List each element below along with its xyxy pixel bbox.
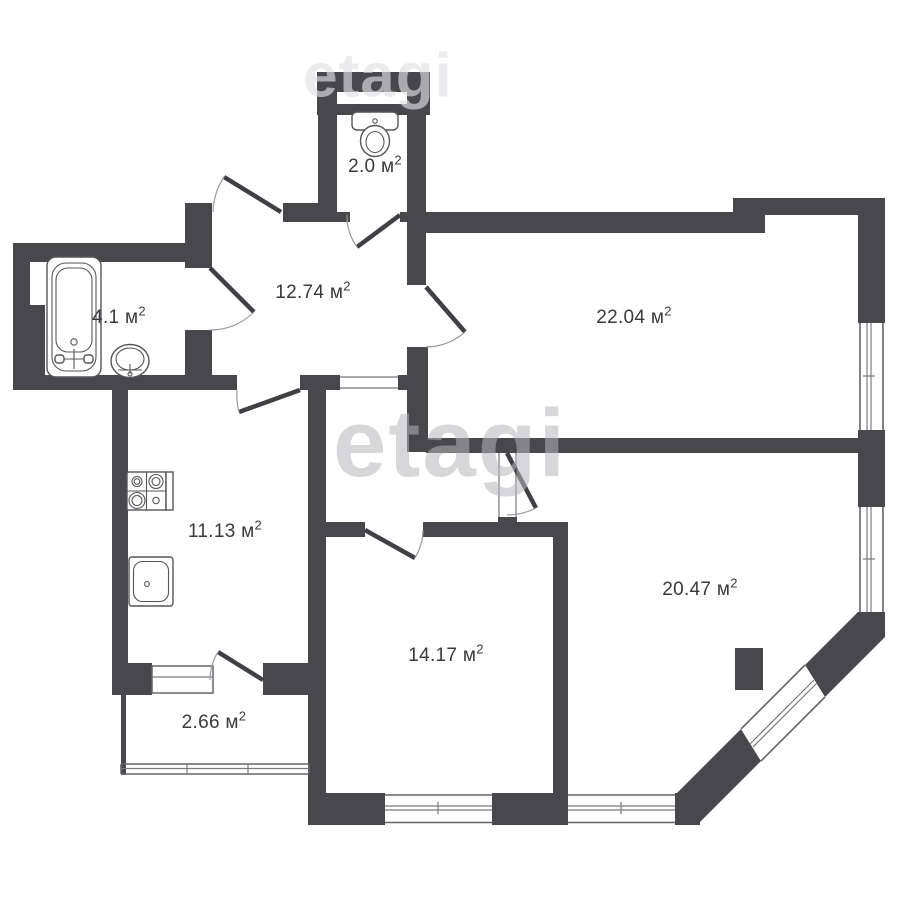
- room-door: [499, 453, 536, 517]
- kitchen-door: [237, 390, 300, 412]
- room-area-label-wc: 2.0 м2: [348, 156, 402, 178]
- window-kitchen-balcony: [152, 666, 213, 693]
- kitchen-sink-icon: [129, 557, 173, 606]
- floor-plan-drawing: [0, 0, 900, 900]
- wc-door: [347, 215, 400, 247]
- bathroom-door: [210, 268, 254, 330]
- balcony-door: [210, 652, 263, 680]
- area-value: 12.74 м: [275, 282, 343, 303]
- bathroom-sink-icon: [111, 345, 149, 378]
- room-area-label-bedroom: 14.17 м2: [408, 645, 484, 667]
- area-sup: 2: [239, 709, 247, 724]
- stove-icon: [127, 472, 173, 510]
- walls: [13, 72, 885, 825]
- bedroom-door: [365, 530, 423, 558]
- floor-plan: etagi etagi 2.0 м2 12.74 м2 22.04 м2 4.1…: [0, 0, 900, 900]
- room-area-label-kitchen: 11.13 м2: [188, 521, 262, 543]
- entrance-door: [213, 177, 281, 212]
- room-area-label-room: 20.47 м2: [662, 579, 738, 601]
- area-sup: 2: [255, 518, 263, 533]
- room-area-label-living: 22.04 м2: [596, 307, 672, 329]
- area-sup: 2: [394, 153, 402, 168]
- window-bedroom-bottom: [385, 793, 492, 825]
- window-living-right: [858, 323, 885, 430]
- area-value: 14.17 м: [408, 645, 476, 666]
- area-value: 4.1 м: [92, 307, 138, 328]
- window-room-bottom: [568, 793, 675, 825]
- living-room-door: [426, 287, 465, 347]
- toilet-icon: [352, 112, 398, 157]
- area-sup: 2: [476, 642, 484, 657]
- room-area-label-bathroom: 4.1 м2: [92, 307, 146, 329]
- hall-corridor-opening: [340, 377, 398, 388]
- area-value: 20.47 м: [662, 579, 730, 600]
- area-sup: 2: [664, 304, 672, 319]
- room-area-label-hallway: 12.74 м2: [275, 282, 351, 304]
- area-sup: 2: [730, 576, 738, 591]
- area-sup: 2: [343, 279, 351, 294]
- balcony-glazing: [121, 764, 309, 774]
- room-area-label-balcony: 2.66 м2: [182, 712, 247, 734]
- area-value: 2.0 м: [348, 156, 394, 177]
- column: [735, 648, 763, 690]
- area-value: 22.04 м: [596, 307, 664, 328]
- area-value: 2.66 м: [182, 712, 239, 733]
- area-sup: 2: [138, 304, 146, 319]
- window-room-right: [858, 507, 885, 612]
- area-value: 11.13 м: [188, 521, 255, 542]
